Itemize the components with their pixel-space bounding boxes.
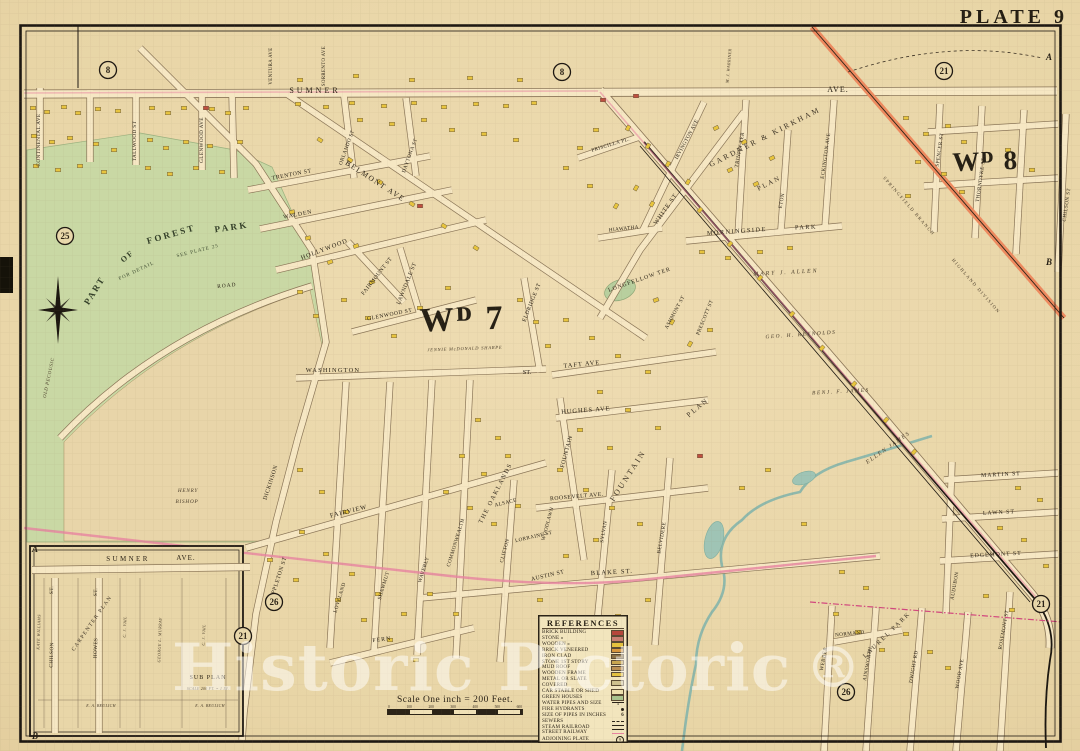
plate-circle-number: 8	[106, 65, 111, 75]
label-ave: AVE.	[827, 85, 848, 94]
scale-tick: 0	[388, 705, 390, 709]
label-bishop: BISHOP	[176, 499, 199, 505]
label-plan: PLAN	[756, 175, 782, 193]
reference-swatch	[611, 689, 624, 695]
label-continental-ave: CONTINENTAL AVE	[36, 114, 42, 167]
label-m-j-warriner: M. J. WARRINER	[724, 48, 732, 84]
label-c-j-vail: C. J. VAIL	[122, 616, 128, 638]
label-sumner: SUMNER	[289, 86, 340, 95]
label-jennie-mcdonald-sharpe: JENNIE McDONALD SHARPE	[427, 345, 502, 353]
plate-title: PLATE 9	[928, 6, 1068, 29]
reference-symbol-sewer	[612, 721, 624, 722]
label-ashmont-st: ASHMONT ST	[664, 294, 687, 330]
reference-swatch	[611, 680, 624, 686]
plate-circle-number: 21	[1037, 599, 1047, 609]
label-b: B	[1045, 257, 1052, 267]
scale-text: Scale One inch = 200 Feet.	[352, 695, 558, 705]
label-henry: HENRY	[177, 488, 199, 494]
label-austin-st: AUSTIN ST	[531, 569, 565, 582]
scale-bar	[387, 709, 523, 715]
scale-tick: 400	[473, 705, 478, 709]
reference-swatch	[611, 672, 624, 678]
label-washington: WASHINGTON	[306, 367, 360, 374]
plate-circle-number: 25	[61, 231, 71, 241]
reference-row: ADJOINING PLATE9	[542, 736, 624, 743]
plate-circle-number: 8	[560, 67, 565, 77]
label-ave: AVE.	[176, 554, 195, 562]
plate-circle-number: 26	[842, 687, 852, 697]
reference-symbol-six: 6	[621, 713, 624, 719]
ward-boundary-line	[810, 602, 1062, 622]
label-tallwood-st: TALLWOOD ST	[132, 120, 138, 161]
label-glenwood-ave: GLENWOOD AVE	[199, 117, 205, 163]
reference-symbol-hydrant	[621, 708, 624, 711]
label-highland-division: HIGHLAND DIVISION	[951, 257, 1002, 314]
scale-tick: 200	[428, 705, 433, 709]
label-irvington-ave: IRVINGTON AVE	[674, 118, 700, 160]
label-w-7: Wᴰ 7	[419, 300, 506, 340]
reference-symbol-waterpipe: 4	[612, 702, 624, 705]
label-appleton-st: APPLETON ST	[270, 556, 289, 599]
reference-swatch	[611, 636, 624, 642]
scale-tick: 500	[495, 705, 500, 709]
label-howes: HOWES	[93, 638, 100, 659]
plate-circle-number: 26	[270, 597, 280, 607]
label-chilson: CHILSON	[49, 642, 56, 667]
label-ventura-ave: VENTURA AVE	[269, 47, 274, 84]
plate-circle-number: 21	[239, 631, 249, 641]
label-st: ST.	[49, 586, 55, 594]
reference-swatch	[611, 660, 624, 666]
reference-swatch	[611, 648, 624, 654]
label-sorrento-ave: SORRENTO AVE	[322, 46, 327, 86]
label-geo-h-reynolds: GEO. H. REYNOLDS	[765, 330, 836, 341]
scale-block: Scale One inch = 200 Feet. 0100200300400…	[352, 695, 558, 715]
label-fern: FERN	[372, 636, 391, 644]
reference-swatch	[611, 642, 624, 648]
references-legend: REFERENCES BRICK BUILDINGSTONE »WOODEN »…	[538, 615, 628, 743]
label-sub-plan: SUB PLAN	[190, 675, 227, 681]
scale-tick: 100	[406, 705, 411, 709]
reference-swatch	[611, 666, 624, 672]
scale-tick: 600	[517, 705, 522, 709]
reference-label: ADJOINING PLATE	[542, 737, 589, 743]
reference-swatch	[611, 654, 624, 660]
references-title: REFERENCES	[542, 618, 624, 629]
label-e-a-beulich: E. A. BEULICH	[194, 703, 225, 708]
label-a: A	[31, 544, 38, 554]
reference-symbol-steam	[612, 725, 624, 729]
label-audubon: AUDUBON	[950, 571, 961, 600]
scale-tick: 300	[451, 705, 456, 709]
label-park: PARK	[795, 224, 817, 232]
reference-symbol-railway	[612, 733, 624, 734]
atlas-sheet: SUMNERAVE.VENTURA AVESORRENTO AVECONTINE…	[0, 0, 1080, 751]
plate-circle-number: 21	[940, 66, 950, 76]
reference-symbol-plate: 9	[616, 736, 624, 743]
watercourse	[682, 436, 932, 751]
label-sumner: SUMNER	[106, 555, 150, 563]
label-c-j-vail: C. J. VAIL	[201, 624, 207, 646]
label-a: A	[1045, 52, 1052, 62]
reference-swatch	[611, 630, 624, 636]
label-scale-200-ft-1-in: SCALE 200 FT. = 1 IN.	[187, 687, 229, 691]
label-st: ST.	[93, 588, 99, 596]
label-mary-j-allen: MARY J. ALLEN	[752, 268, 818, 277]
scan-edge-tab	[0, 257, 13, 293]
label-st: ST.	[523, 369, 532, 376]
reference-swatch	[611, 695, 624, 701]
label-e-a-beulich: E. A. BEULICH	[85, 703, 116, 708]
